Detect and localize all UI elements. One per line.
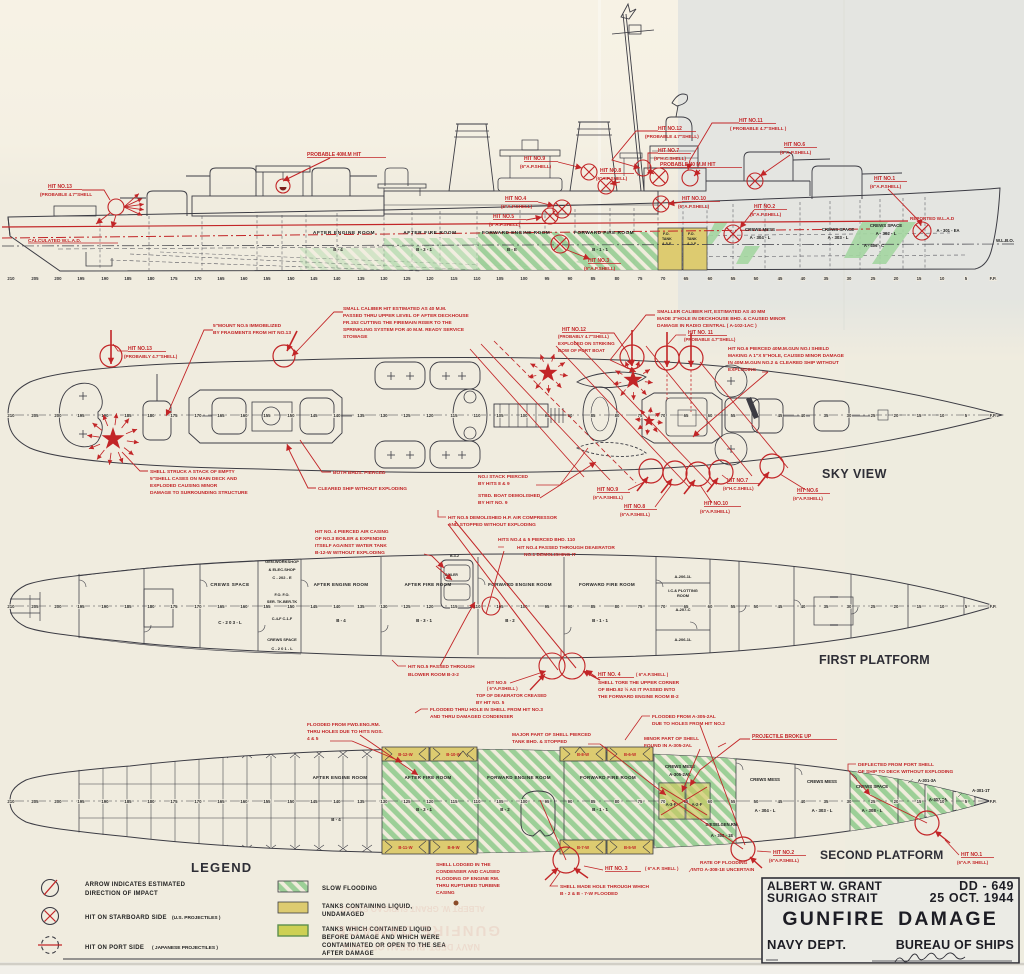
svg-text:F.O.: F.O.	[663, 232, 670, 236]
svg-text:180: 180	[147, 276, 155, 281]
svg-text:(6″A.P.SHELL): (6″A.P.SHELL)	[593, 495, 623, 500]
svg-text:55: 55	[731, 413, 736, 418]
svg-text:CONDENSER AND CAUSED: CONDENSER AND CAUSED	[436, 869, 500, 875]
svg-text:30: 30	[847, 276, 852, 281]
svg-text:( 6″A.P. SHELL ): ( 6″A.P. SHELL )	[645, 866, 679, 871]
svg-text:B - 2: B - 2	[500, 807, 510, 812]
svg-text:190: 190	[101, 604, 109, 609]
svg-text:200: 200	[54, 276, 62, 281]
svg-text:135: 135	[357, 604, 365, 609]
svg-text:(6″A.P.SHELL): (6″A.P.SHELL)	[769, 858, 799, 863]
svg-text:150: 150	[287, 276, 295, 281]
svg-text:205: 205	[31, 604, 39, 609]
svg-text:15: 15	[917, 276, 922, 281]
svg-text:90: 90	[568, 276, 573, 281]
svg-text:70: 70	[661, 799, 666, 804]
svg-text:95: 95	[545, 799, 550, 804]
svg-text:145: 145	[310, 276, 318, 281]
svg-text:(6″A.P.SHELL): (6″A.P.SHELL)	[489, 222, 521, 227]
svg-text:B-9-W: B-9-W	[447, 845, 459, 850]
svg-text:185: 185	[124, 413, 132, 418]
svg-text:55: 55	[731, 799, 736, 804]
svg-text:B-8-W: B-8-W	[577, 752, 589, 757]
svg-text:PROBABLE 40 M.M HIT: PROBABLE 40 M.M HIT	[660, 162, 716, 168]
svg-text:30: 30	[847, 413, 852, 418]
svg-text:A - 303 - L: A - 303 - L	[812, 808, 833, 813]
svg-text:HIT NO. 3: HIT NO. 3	[605, 866, 628, 872]
svg-text:RATE OF FLOODING: RATE OF FLOODING	[700, 860, 748, 866]
svg-text:B - 1 - 1: B - 1 - 1	[592, 807, 608, 812]
svg-text:HIT NO.1: HIT NO.1	[874, 176, 895, 182]
svg-text:25: 25	[871, 276, 876, 281]
svg-text:150: 150	[287, 799, 295, 804]
svg-text:155: 155	[263, 413, 271, 418]
svg-text:GUNFIRE: GUNFIRE	[782, 908, 885, 930]
svg-text:HIT NO.4 PASSED THROUGH DEAERA: HIT NO.4 PASSED THROUGH DEAERATOR	[517, 545, 615, 551]
svg-text:A-5-F: A-5-F	[662, 242, 672, 246]
svg-text:35: 35	[824, 276, 829, 281]
svg-text:(6″A.P.SHELL): (6″A.P.SHELL)	[620, 512, 650, 517]
svg-text:170: 170	[194, 413, 202, 418]
svg-text:140: 140	[333, 276, 341, 281]
svg-text:120: 120	[426, 799, 434, 804]
svg-text:175: 175	[170, 799, 178, 804]
svg-text:(6″A.P.SHELL): (6″A.P.SHELL)	[700, 509, 730, 514]
svg-text:190: 190	[101, 799, 109, 804]
svg-text:DAMAGE: DAMAGE	[898, 908, 998, 930]
svg-text:175: 175	[170, 276, 178, 281]
svg-text:A-206-1L: A-206-1L	[675, 574, 692, 579]
svg-text:SKY VIEW: SKY VIEW	[822, 467, 887, 481]
svg-text:THRU RUPTURED TURBINE: THRU RUPTURED TURBINE	[436, 883, 501, 889]
svg-text:A-301-1T: A-301-1T	[972, 788, 990, 793]
svg-text:FORWARD FIRE ROOM: FORWARD FIRE ROOM	[574, 230, 634, 236]
svg-text:100: 100	[520, 413, 528, 418]
svg-text:30: 30	[847, 604, 852, 609]
svg-text:HIT NO.10: HIT NO.10	[704, 501, 728, 507]
svg-text:85: 85	[591, 604, 596, 609]
svg-text:SHELL STRUCK A STACK OF EMPTY: SHELL STRUCK A STACK OF EMPTY	[150, 469, 236, 475]
svg-text:DEFLECTED FROM PORT SHELL: DEFLECTED FROM PORT SHELL	[858, 762, 934, 768]
svg-text:INTO A-308-1E UNCERTAIN: INTO A-308-1E UNCERTAIN	[692, 867, 755, 873]
svg-text:CREWS MESS: CREWS MESS	[745, 227, 775, 232]
svg-text:A-2-F: A-2-F	[687, 242, 697, 246]
svg-text:FORWARD ENGINE ROOM: FORWARD ENGINE ROOM	[487, 775, 551, 780]
svg-text:PASSED THRU UPPER LEVEL OF AFT: PASSED THRU UPPER LEVEL OF AFTER DECKHOU…	[343, 313, 470, 319]
svg-text:110: 110	[474, 276, 482, 281]
svg-text:125: 125	[403, 276, 411, 281]
svg-text:160: 160	[240, 604, 248, 609]
svg-text:85: 85	[591, 799, 596, 804]
svg-text:AFTER ENGINE ROOM: AFTER ENGINE ROOM	[313, 775, 368, 780]
svg-text:HIT NO.6: HIT NO.6	[797, 488, 818, 494]
svg-text:170: 170	[194, 799, 202, 804]
svg-text:B - 3 - 1: B - 3 - 1	[416, 247, 432, 252]
svg-text:HIT NO.8: HIT NO.8	[600, 168, 621, 174]
svg-text:SHELL MADE HOLE THROUGH WHICH: SHELL MADE HOLE THROUGH WHICH	[560, 884, 649, 890]
svg-text:(6″A.P. SHELL): (6″A.P. SHELL)	[957, 860, 989, 865]
svg-text:HITS NO.4 & 5 PIERCED BHD. 110: HITS NO.4 & 5 PIERCED BHD. 110	[498, 537, 575, 543]
svg-text:B-6-W: B-6-W	[624, 752, 636, 757]
svg-text:185: 185	[124, 799, 132, 804]
svg-text:BOTH BHDS. PIERCED: BOTH BHDS. PIERCED	[333, 470, 386, 476]
svg-text:205: 205	[31, 276, 39, 281]
svg-text:AND STOPPED WITHOUT EXPLODING: AND STOPPED WITHOUT EXPLODING	[448, 522, 536, 528]
svg-text:B - 4: B - 4	[331, 817, 341, 822]
svg-text:SPRINKLING SYSTEM FOR 40 M.M.: SPRINKLING SYSTEM FOR 40 M.M. READY SERV…	[343, 327, 465, 333]
svg-text:(U.S. PROJECTILES ): (U.S. PROJECTILES )	[172, 915, 221, 921]
svg-text:HIT NO.5 DEMOLISHED H.P. AIR C: HIT NO.5 DEMOLISHED H.P. AIR COMPRESSOR	[448, 515, 558, 521]
svg-text:195: 195	[77, 604, 85, 609]
svg-text:155: 155	[263, 604, 271, 609]
svg-text:ROOM: ROOM	[677, 593, 689, 598]
svg-text:C-4-F C-1-F: C-4-F C-1-F	[272, 617, 293, 621]
svg-text:PROBABLE 40M.M HIT: PROBABLE 40M.M HIT	[307, 152, 361, 158]
svg-text:HIT NO.13: HIT NO.13	[128, 346, 152, 352]
svg-text:160: 160	[240, 799, 248, 804]
svg-text:SMALL CALIBER HIT ESTIMATED AS: SMALL CALIBER HIT ESTIMATED AS 40 M.M.	[343, 306, 446, 312]
svg-text:25 OCT. 1944: 25 OCT. 1944	[930, 891, 1014, 905]
svg-text:140: 140	[333, 413, 341, 418]
svg-text:115: 115	[451, 604, 459, 609]
svg-text:MAKING A 1″X 5″HOLE, CAUSED MI: MAKING A 1″X 5″HOLE, CAUSED MINOR DAMAGE	[728, 353, 845, 359]
svg-text:(6″H.C.SHELL): (6″H.C.SHELL)	[723, 486, 754, 491]
svg-text:170: 170	[194, 276, 202, 281]
svg-text:65: 65	[684, 413, 689, 418]
svg-text:155: 155	[263, 276, 271, 281]
svg-text:TANK: TANK	[662, 237, 672, 241]
svg-text:FOUND IN A-305-2AL: FOUND IN A-305-2AL	[644, 743, 692, 749]
svg-text:F.O. F.O.: F.O. F.O.	[275, 593, 290, 597]
svg-text:115: 115	[451, 276, 459, 281]
svg-text:FLOODED FROM A-305-2AL: FLOODED FROM A-305-2AL	[652, 714, 716, 720]
svg-text:80: 80	[615, 413, 620, 418]
svg-text:5″MOUNT NO.5 IMMOBILIZED: 5″MOUNT NO.5 IMMOBILIZED	[213, 323, 282, 329]
svg-text:BY HITS 8 & 9: BY HITS 8 & 9	[478, 481, 510, 487]
svg-text:60: 60	[708, 604, 713, 609]
svg-text:20: 20	[894, 799, 899, 804]
svg-text:SHELL TORE THE UPPER CORNER: SHELL TORE THE UPPER CORNER	[598, 680, 680, 686]
svg-text:( 6″A.P.SHELL ): ( 6″A.P.SHELL )	[636, 672, 669, 677]
svg-text:HIT NO.9: HIT NO.9	[597, 487, 618, 493]
svg-text:EXPLODING: EXPLODING	[728, 367, 757, 373]
svg-text:10: 10	[940, 604, 945, 609]
svg-text:65: 65	[684, 604, 689, 609]
svg-text:145: 145	[310, 604, 318, 609]
svg-text:HIT NO.8: HIT NO.8	[624, 504, 645, 510]
svg-text:CREWS MESS: CREWS MESS	[807, 779, 837, 784]
svg-text:BLOWER ROOM B-3-2: BLOWER ROOM B-3-2	[408, 672, 459, 678]
svg-text:15: 15	[917, 799, 922, 804]
svg-text:HIT NO.13: HIT NO.13	[48, 184, 72, 190]
svg-text:50: 50	[754, 604, 759, 609]
svg-text:A - 304 - L: A - 304 - L	[750, 235, 771, 240]
svg-text:PROJECTILE BROKE UP: PROJECTILE BROKE UP	[752, 734, 812, 740]
svg-text:115: 115	[451, 799, 459, 804]
svg-text:45: 45	[778, 604, 783, 609]
svg-text:CREWS SPACE: CREWS SPACE	[267, 637, 297, 642]
svg-text:150: 150	[287, 604, 295, 609]
svg-text:HIT NO.9: HIT NO.9	[524, 156, 545, 162]
svg-text:(6″A.P.SHELL): (6″A.P.SHELL)	[870, 184, 902, 189]
svg-text:HIT NO.1: HIT NO.1	[961, 852, 982, 858]
svg-text:A - 308 - L: A - 308 - L	[862, 808, 883, 813]
svg-text:185: 185	[124, 604, 132, 609]
svg-text:40: 40	[801, 604, 806, 609]
svg-text:(6″H.C.SHELL): (6″H.C.SHELL)	[654, 156, 687, 161]
svg-text:125: 125	[403, 604, 411, 609]
svg-text:150: 150	[287, 413, 295, 418]
svg-text:25: 25	[871, 604, 876, 609]
svg-text:120: 120	[426, 276, 434, 281]
svg-text:AFTER FIRE ROOM: AFTER FIRE ROOM	[404, 582, 451, 587]
svg-text:B - 1 - 1: B - 1 - 1	[592, 618, 608, 623]
svg-text:130: 130	[380, 413, 388, 418]
svg-text:50: 50	[754, 276, 759, 281]
svg-text:F.P.: F.P.	[990, 276, 997, 281]
svg-text:AFTER ENGINE ROOM: AFTER ENGINE ROOM	[313, 230, 375, 236]
svg-text:BY FRAGMENTS FROM HIT NO.13: BY FRAGMENTS FROM HIT NO.13	[213, 330, 291, 336]
svg-text:STOWAGE: STOWAGE	[343, 334, 368, 340]
svg-text:A - 304 - L: A - 304 - L	[755, 808, 776, 813]
svg-text:35: 35	[824, 799, 829, 804]
svg-text:200: 200	[54, 604, 62, 609]
svg-text:195: 195	[77, 799, 85, 804]
svg-text:(6″A.P.SHELL): (6″A.P.SHELL)	[750, 212, 782, 217]
svg-text:CREWS SPACE: CREWS SPACE	[870, 223, 902, 228]
svg-text:(PROBABLE 4.7″SHELL: (PROBABLE 4.7″SHELL	[40, 192, 92, 197]
svg-text:100: 100	[520, 276, 528, 281]
svg-text:210: 210	[7, 604, 15, 609]
svg-text:HIT NO. 4: HIT NO. 4	[598, 672, 621, 678]
svg-text:95: 95	[545, 604, 550, 609]
svg-text:FORWARD FIRE ROOM: FORWARD FIRE ROOM	[580, 775, 636, 780]
svg-text:NO.I STACK PIERCED: NO.I STACK PIERCED	[478, 474, 529, 480]
svg-text:135: 135	[357, 799, 365, 804]
svg-text:55: 55	[731, 276, 736, 281]
svg-text:(6″A.P.SHELL): (6″A.P.SHELL)	[678, 204, 710, 209]
svg-text:B-12-W: B-12-W	[398, 752, 412, 757]
svg-text:145: 145	[310, 413, 318, 418]
svg-text:NO.1 DEMOLISHING IT: NO.1 DEMOLISHING IT	[524, 552, 576, 558]
svg-text:SHELL LODGED IN THE: SHELL LODGED IN THE	[436, 862, 491, 868]
svg-text:BOW OF PORT BOAT: BOW OF PORT BOAT	[558, 348, 605, 353]
svg-text:190: 190	[101, 276, 109, 281]
svg-text:85: 85	[591, 276, 596, 281]
svg-text:CASING: CASING	[436, 890, 455, 896]
svg-text:BY HIT NO. 9: BY HIT NO. 9	[478, 500, 508, 506]
svg-text:70: 70	[661, 413, 666, 418]
svg-text:85: 85	[591, 413, 596, 418]
svg-text:HIT NO.4: HIT NO.4	[505, 196, 526, 202]
svg-text:25: 25	[871, 413, 876, 418]
svg-text:HIT NO.3: HIT NO.3	[588, 258, 609, 264]
svg-text:EXPLODED ON STRIKING: EXPLODED ON STRIKING	[558, 341, 615, 346]
svg-text:SLOW FLOODING: SLOW FLOODING	[322, 886, 377, 892]
svg-text:FORWARD ENGINE ROOM: FORWARD ENGINE ROOM	[482, 230, 550, 236]
svg-text:F.P.: F.P.	[990, 413, 997, 418]
svg-text:205: 205	[31, 799, 39, 804]
svg-text:165: 165	[217, 413, 225, 418]
svg-text:HIT ON PORT SIDE: HIT ON PORT SIDE	[85, 945, 144, 951]
svg-text:125: 125	[403, 413, 411, 418]
svg-text:SECOND PLATFORM: SECOND PLATFORM	[820, 848, 943, 862]
svg-text:(PROBABLY 4.7″SHELL): (PROBABLY 4.7″SHELL)	[124, 354, 178, 359]
svg-text:20: 20	[894, 604, 899, 609]
svg-text:110: 110	[474, 799, 482, 804]
svg-text:75: 75	[638, 799, 643, 804]
svg-text:A-301-3A: A-301-3A	[918, 778, 936, 783]
svg-text:185: 185	[124, 276, 132, 281]
svg-text:B-7-W: B-7-W	[577, 845, 589, 850]
svg-text:210: 210	[7, 799, 15, 804]
svg-text:OF BHD.92 ½ AS IT PASSED INTO: OF BHD.92 ½ AS IT PASSED INTO	[598, 686, 675, 693]
svg-text:NAVY DEPT. BUREAU OF SHIPS: NAVY DEPT. BUREAU OF SHIPS	[342, 942, 480, 952]
svg-text:75: 75	[638, 604, 643, 609]
svg-text:165: 165	[217, 604, 225, 609]
svg-text:10: 10	[940, 799, 945, 804]
svg-text:A - 406 - C: A - 406 - C	[864, 243, 884, 248]
svg-text:OF SHIP TO DECK WITHOUT EXPLOD: OF SHIP TO DECK WITHOUT EXPLODING	[858, 769, 954, 775]
svg-text:20: 20	[894, 276, 899, 281]
svg-text:GEN.WORKSHOP: GEN.WORKSHOP	[265, 559, 299, 564]
svg-text:DAMAGE IN RADIO CENTRAL ( A-10: DAMAGE IN RADIO CENTRAL ( A-102-1AC )	[657, 323, 757, 329]
svg-text:15: 15	[917, 413, 922, 418]
svg-text:B-3-2: B-3-2	[450, 554, 459, 558]
svg-text:35: 35	[824, 604, 829, 609]
svg-text:C - 2 0 1 - L: C - 2 0 1 - L	[271, 646, 293, 651]
svg-text:SURIGAO STRAIT: SURIGAO STRAIT	[767, 891, 878, 905]
svg-text:STBD. BOAT DEMOLISHED: STBD. BOAT DEMOLISHED	[478, 493, 541, 499]
svg-text:CREWS MESS: CREWS MESS	[665, 764, 695, 769]
svg-text:45: 45	[778, 276, 783, 281]
svg-text:ARROW INDICATES ESTIMATED: ARROW INDICATES ESTIMATED	[85, 882, 186, 888]
svg-text:B - 3 - 1: B - 3 - 1	[416, 807, 432, 812]
svg-text:SMALLER CALIBER HIT, ESTIMATED: SMALLER CALIBER HIT, ESTIMATED AS 40 MM	[657, 309, 765, 315]
svg-text:(6″A.P.SHELL): (6″A.P.SHELL)	[793, 496, 823, 501]
svg-text:90: 90	[568, 604, 573, 609]
svg-text:F.P.: F.P.	[990, 799, 997, 804]
svg-text:GUNFIRE DAMAGE: GUNFIRE DAMAGE	[334, 922, 500, 939]
svg-text:LEGEND: LEGEND	[191, 860, 252, 875]
svg-text:( 6″A.P.SHELL ): ( 6″A.P.SHELL )	[487, 686, 518, 691]
svg-text:FIRST PLATFORM: FIRST PLATFORM	[819, 653, 930, 667]
svg-text:120: 120	[426, 604, 434, 609]
svg-text:(PROBABLE 4.7″SHELL): (PROBABLE 4.7″SHELL)	[645, 134, 699, 139]
svg-text:(6″A.P.SHELL): (6″A.P.SHELL)	[520, 164, 552, 169]
svg-text:80: 80	[615, 276, 620, 281]
svg-text:AFTER FIRE ROOM: AFTER FIRE ROOM	[403, 230, 457, 236]
svg-text:60: 60	[708, 276, 713, 281]
svg-text:CREWS MESS: CREWS MESS	[750, 777, 780, 782]
svg-text:MINOR PART OF SHELL: MINOR PART OF SHELL	[644, 736, 699, 742]
svg-text:DIRECTION OF IMPACT: DIRECTION OF IMPACT	[85, 891, 158, 897]
svg-text:HIT NO.2: HIT NO.2	[754, 204, 775, 210]
svg-text:10: 10	[940, 276, 945, 281]
svg-text:BY HIT NO. 5: BY HIT NO. 5	[476, 700, 505, 705]
svg-text:195: 195	[77, 276, 85, 281]
svg-text:45: 45	[778, 413, 783, 418]
svg-text:AND THRU DAMAGED CONDENSER: AND THRU DAMAGED CONDENSER	[430, 714, 514, 720]
svg-text:135: 135	[357, 413, 365, 418]
svg-text:B-11-W: B-11-W	[398, 845, 412, 850]
svg-text:& ELEC.SHOP: & ELEC.SHOP	[268, 567, 295, 572]
svg-text:210: 210	[7, 413, 15, 418]
svg-text:40: 40	[801, 276, 806, 281]
svg-text:HIT NO.12: HIT NO.12	[562, 327, 586, 333]
svg-text:W.L.B.O.: W.L.B.O.	[996, 238, 1014, 243]
svg-text:110: 110	[474, 413, 482, 418]
svg-text:B - 4: B - 4	[336, 618, 346, 623]
svg-text:HIT NO. 4 PIERCED AIR CASING: HIT NO. 4 PIERCED AIR CASING	[315, 529, 389, 535]
svg-text:B-5-W: B-5-W	[624, 845, 636, 850]
svg-text:(6″A.P.SHELL): (6″A.P.SHELL)	[584, 266, 616, 271]
svg-text:105: 105	[496, 276, 504, 281]
svg-text:140: 140	[333, 799, 341, 804]
svg-text:(6″A.P.SHELL): (6″A.P.SHELL)	[780, 150, 812, 155]
svg-text:F.P.: F.P.	[990, 604, 997, 609]
svg-text:MADE 3″HOLE IN DECKHOUSE BHD.: MADE 3″HOLE IN DECKHOUSE BHD. & CAUSED M…	[657, 316, 786, 322]
svg-text:100: 100	[520, 799, 528, 804]
svg-text:(PROBABLY 4.7″SHELL): (PROBABLY 4.7″SHELL)	[558, 334, 609, 339]
svg-text:75: 75	[638, 276, 643, 281]
svg-text:135: 135	[357, 276, 365, 281]
svg-text:HIT NO.7: HIT NO.7	[727, 478, 748, 484]
svg-text:A - 302 - L: A - 302 - L	[876, 231, 897, 236]
svg-text:FLOODED THRU HOLE IN SHELL FRO: FLOODED THRU HOLE IN SHELL FROM HIT NO.3	[430, 707, 543, 713]
svg-text:HIT NO.11: HIT NO.11	[739, 118, 763, 124]
svg-text:90: 90	[568, 799, 573, 804]
svg-text:DAMAGE TO SURROUNDING STRUCTUR: DAMAGE TO SURROUNDING STRUCTURE	[150, 490, 249, 496]
svg-text:165: 165	[217, 799, 225, 804]
svg-text:55: 55	[731, 604, 736, 609]
svg-text:CLEARED SHIP WITHOUT EXPLODING: CLEARED SHIP WITHOUT EXPLODING	[318, 486, 407, 492]
svg-text:ITSELF AGAINST WATER TANK: ITSELF AGAINST WATER TANK	[315, 543, 387, 549]
svg-text:C - 202 - E: C - 202 - E	[272, 575, 292, 580]
svg-text:HIT NO.2: HIT NO.2	[773, 850, 794, 856]
svg-text:160: 160	[240, 276, 248, 281]
svg-text:DUE TO HOLES FROM HIT NO.2: DUE TO HOLES FROM HIT NO.2	[652, 721, 725, 727]
svg-text:145: 145	[310, 799, 318, 804]
svg-text:B - 3 - 1: B - 3 - 1	[416, 618, 432, 623]
svg-text:10: 10	[940, 413, 945, 418]
svg-text:HIT NO.6 PIERCED 40M.M.GUN NO.: HIT NO.6 PIERCED 40M.M.GUN NO.I SHIELD	[728, 346, 830, 352]
svg-text:( JAPANESE PROJECTILES ): ( JAPANESE PROJECTILES )	[152, 945, 218, 951]
svg-text:140: 140	[333, 604, 341, 609]
svg-text:65: 65	[684, 276, 689, 281]
svg-text:175: 175	[170, 604, 178, 609]
svg-text:EXPLODED CAUSING MINOR: EXPLODED CAUSING MINOR	[150, 483, 218, 489]
svg-text:70: 70	[661, 604, 666, 609]
svg-text:F.O.: F.O.	[688, 232, 695, 236]
svg-text:OF NO.3 BOILER & EXPENDED: OF NO.3 BOILER & EXPENDED	[315, 536, 387, 542]
svg-text:45: 45	[778, 799, 783, 804]
svg-text:50: 50	[754, 799, 759, 804]
svg-text:A - 303 - L: A - 303 - L	[828, 235, 849, 240]
svg-text:B - 4: B - 4	[333, 247, 343, 252]
svg-text:HIT NO.6: HIT NO.6	[784, 142, 805, 148]
svg-text:80: 80	[615, 604, 620, 609]
svg-text:155: 155	[263, 799, 271, 804]
svg-text:THRU HOLES DUE TO HITS NOS.: THRU HOLES DUE TO HITS NOS.	[307, 729, 383, 735]
svg-text:105: 105	[496, 799, 504, 804]
svg-text:FR.152 CUTTING THE FIREMAIN RI: FR.152 CUTTING THE FIREMAIN RISER TO THE	[343, 320, 452, 326]
svg-text:180: 180	[147, 413, 155, 418]
svg-text:205: 205	[31, 413, 39, 418]
svg-text:170: 170	[194, 604, 202, 609]
svg-text:25: 25	[871, 799, 876, 804]
svg-text:20: 20	[894, 413, 899, 418]
